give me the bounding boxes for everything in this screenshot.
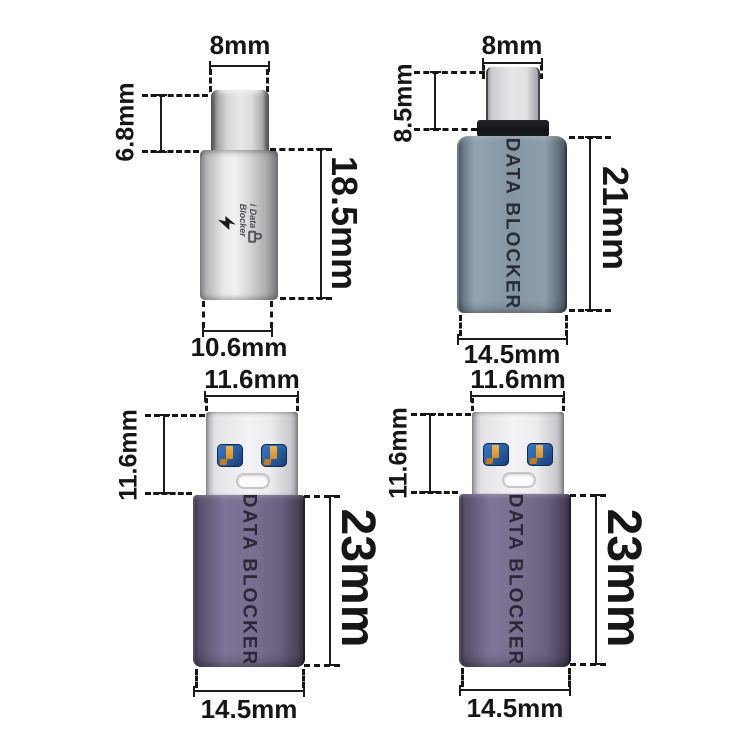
a3-usb-contact-right xyxy=(261,444,287,467)
a1-bottom-width-label: 10.6mm xyxy=(191,334,288,360)
a2-body-height-label: 21mm xyxy=(597,166,633,270)
a4-plug-top-dashed-line xyxy=(411,413,471,416)
a2-bottom-dashed-line-left xyxy=(459,315,462,336)
a4-body-height-dimension-line xyxy=(595,495,597,664)
a3-body-height-label: 23mm xyxy=(333,509,381,648)
a2-plug-height-dimension-line xyxy=(434,72,436,129)
a1-bottom-dashed-line-right xyxy=(270,301,273,328)
a2-black-collar xyxy=(477,120,549,137)
a1-logo-text-line1: i Data xyxy=(248,204,258,229)
a4-plug-bottom-dashed-line xyxy=(411,491,458,494)
a3-plug-height-dimension-line xyxy=(163,415,165,493)
a4-usb-slot xyxy=(502,472,536,488)
a3-data-blocker-text: DATA BLOCKER xyxy=(240,494,259,666)
a4-top-width-dimension-line xyxy=(471,395,564,397)
a2-body-height-dimension-line xyxy=(589,137,591,310)
a3-body-height-dimension-line xyxy=(329,496,331,665)
a2-usb-c-plug xyxy=(486,67,540,122)
a1-top-width-dimension-line xyxy=(210,65,269,67)
a2-top-width-label: 8mm xyxy=(482,32,543,58)
a3-body-top-dashed-line xyxy=(304,495,340,498)
a3-plug-bottom-dashed-line xyxy=(145,492,192,495)
a2-top-width-dimension-line xyxy=(483,62,542,64)
a4-body-height-label: 23mm xyxy=(599,509,647,648)
a1-bottom-dashed-line-left xyxy=(202,301,205,328)
a2-plug-bottom-dashed-line xyxy=(414,128,477,131)
a1-logo-text-line2: Blocker xyxy=(238,204,248,243)
a1-plug-top-dashed-line xyxy=(142,94,208,97)
a3-bottom-dashed-line-left xyxy=(195,669,198,688)
a2-bottom-dashed-line-right xyxy=(565,315,568,336)
a3-top-width-dimension-line xyxy=(205,395,298,397)
a3-usb-slot xyxy=(236,473,270,489)
a2-plug-height-label: 8.5mm xyxy=(392,63,417,142)
a4-plug-height-label: 11.6mm xyxy=(387,407,412,499)
a1-body-bottom-dashed-line xyxy=(280,297,332,300)
dimension-diagram: 8mm i Data Blocker 6.8mm 18.5mm 10.6mm 8… xyxy=(0,0,750,750)
a1-body-height-label: 18.5mm xyxy=(326,156,362,290)
a4-bottom-width-label: 14.5mm xyxy=(467,695,564,721)
a4-body-bottom-dashed-line xyxy=(570,663,606,666)
lock-icon xyxy=(248,230,262,242)
a1-usb-c-plug xyxy=(211,90,269,152)
a1-body-top-dashed-line xyxy=(270,148,332,151)
a4-usb-contact-right xyxy=(527,443,553,466)
lightning-icon xyxy=(218,216,236,230)
a2-top-dashed-line-right xyxy=(540,65,543,79)
a4-data-blocker-text: DATA BLOCKER xyxy=(506,494,525,666)
a4-bottom-width-dimension-line xyxy=(460,689,570,691)
a4-top-dashed-line-left xyxy=(471,398,474,411)
a2-data-blocker-text: DATA BLOCKER xyxy=(503,138,522,310)
a3-top-width-label: 11.6mm xyxy=(204,366,299,392)
a4-bottom-dashed-line-left xyxy=(461,668,464,687)
a4-top-dashed-line-right xyxy=(562,398,565,411)
a3-plug-top-dashed-line xyxy=(145,414,205,417)
a2-body-bottom-dashed-line xyxy=(569,309,611,312)
a1-body-height-dimension-line xyxy=(320,149,322,298)
a3-usb-contact-left xyxy=(217,444,243,467)
a3-plug-height-label: 11.6mm xyxy=(117,409,142,501)
a1-top-dashed-line-left xyxy=(209,69,212,92)
a1-top-dashed-line-right xyxy=(266,69,269,92)
a3-bottom-width-label: 14.5mm xyxy=(201,696,298,722)
a3-top-dashed-line-right xyxy=(296,398,299,411)
a2-body-top-dashed-line xyxy=(569,136,611,139)
a4-body-top-dashed-line xyxy=(570,494,606,497)
a3-bottom-width-dimension-line xyxy=(194,690,304,692)
a1-plug-height-label: 6.8mm xyxy=(114,82,139,161)
a1-top-width-label: 8mm xyxy=(210,32,271,58)
a3-top-dashed-line-left xyxy=(205,398,208,411)
a1-brand-logo: i Data Blocker xyxy=(218,204,262,243)
a4-usb-contact-left xyxy=(483,443,509,466)
a2-plug-top-dashed-line xyxy=(414,71,485,74)
a3-body-bottom-dashed-line xyxy=(304,664,340,667)
a1-plug-height-dimension-line xyxy=(160,95,162,152)
a1-plug-bottom-dashed-line xyxy=(142,150,199,153)
a4-top-width-label: 11.6mm xyxy=(470,366,565,392)
a4-plug-height-dimension-line xyxy=(429,414,431,492)
